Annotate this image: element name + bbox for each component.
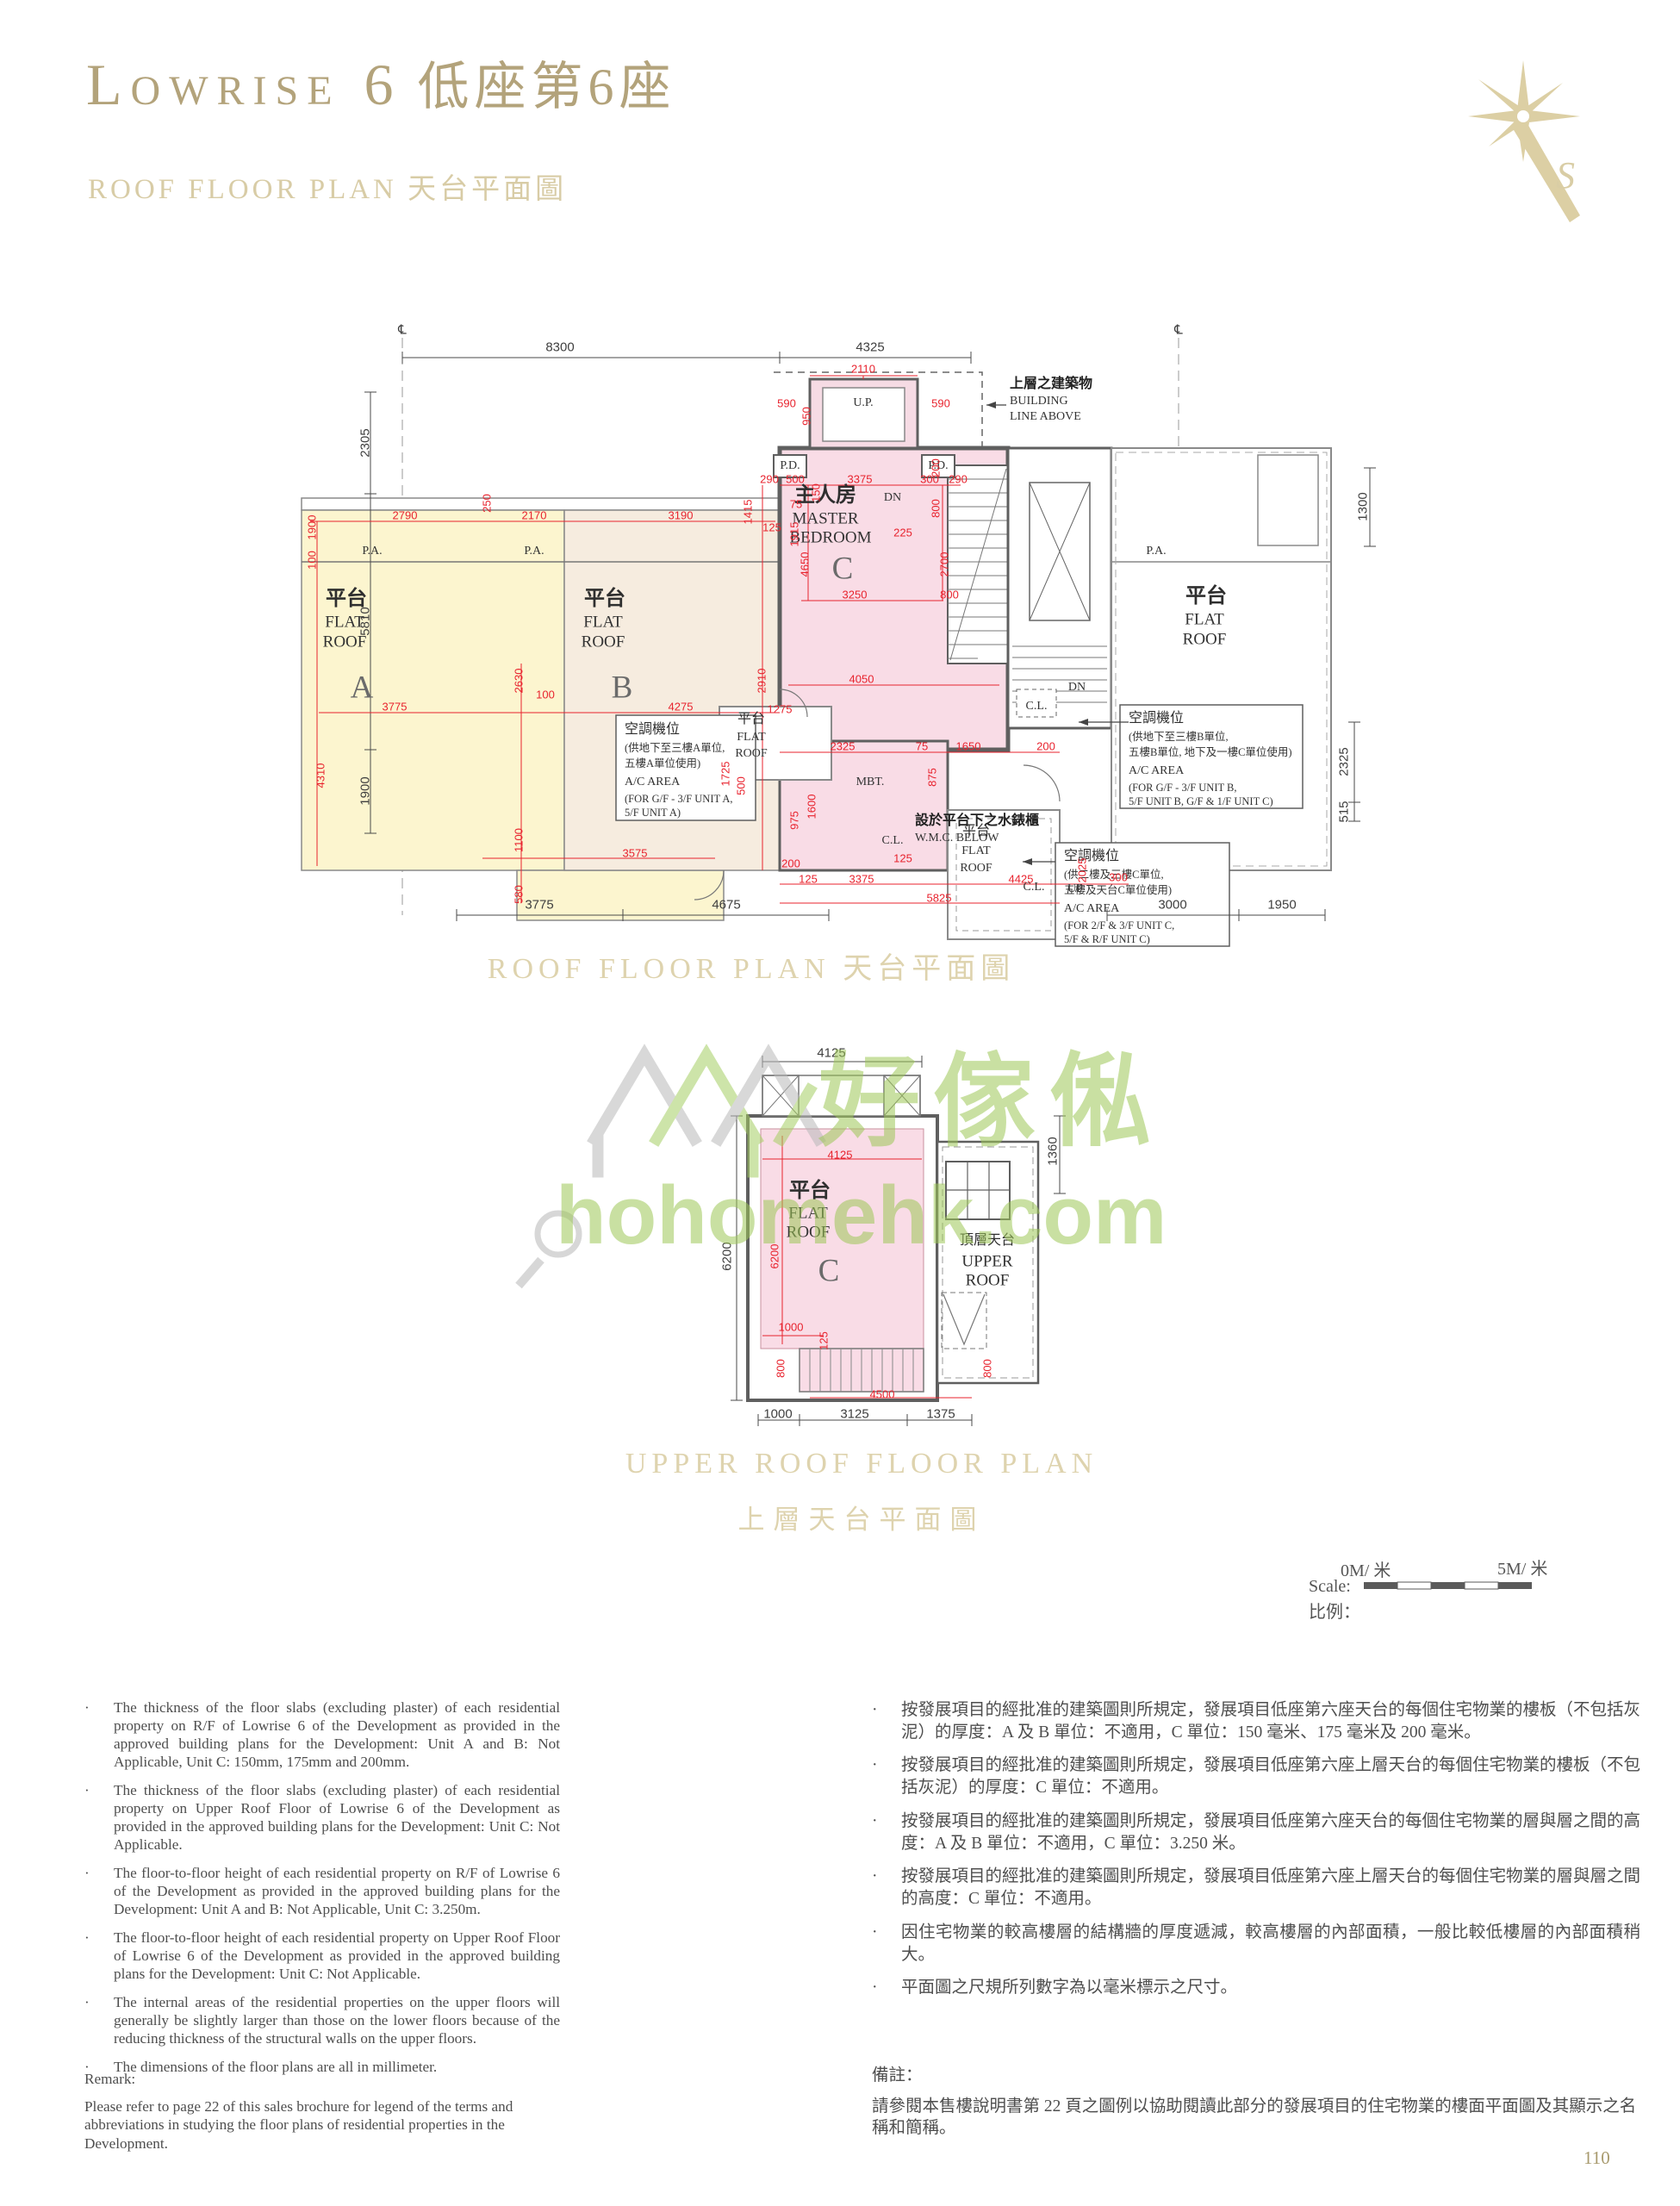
note-text: 按發展項目的經批准的建築圖則所規定，發展項目低座第六座天台的每個住宅物業的樓板（…	[901, 1699, 1640, 1743]
note-text: 因住宅物業的較高樓層的結構牆的厚度遞減，較高樓層的內部面積，一般比較低樓層的內部…	[901, 1922, 1640, 1966]
note-text: The floor-to-floor height of each reside…	[114, 1929, 560, 1984]
bullet-dot: ·	[84, 1782, 114, 1854]
plan-label: 800	[982, 1359, 993, 1378]
bullet-dot: ·	[84, 1929, 114, 1984]
notes-english: ·The thickness of the floor slabs (exclu…	[84, 1699, 560, 2087]
bullet-dot: ·	[872, 1977, 901, 1999]
bullet-dot: ·	[84, 1699, 114, 1772]
remark-english: Remark: Please refer to page 22 of this …	[84, 2070, 560, 2153]
note-item: ·因住宅物業的較高樓層的結構牆的厚度遞減，較高樓層的內部面積，一般比較低樓層的內…	[872, 1922, 1640, 1966]
note-item: ·按發展項目的經批准的建築圖則所規定，發展項目低座第六座上層天台的每個住宅物業的…	[872, 1754, 1640, 1798]
remark-text-en: Please refer to page 22 of this sales br…	[84, 2097, 560, 2153]
scale-label-en: Scale:	[1309, 1577, 1351, 1597]
scale-label-zh: 比例：	[1309, 1598, 1360, 1623]
note-item: ·The floor-to-floor height of each resid…	[84, 1865, 560, 1919]
plan-label: 125	[818, 1331, 830, 1350]
plan-label: ROOF	[966, 1273, 1010, 1289]
note-text: 平面圖之尺規所列數字為以毫米標示之尺寸。	[901, 1977, 1237, 1999]
bullet-dot: ·	[872, 1699, 901, 1743]
plan-label: 4500	[870, 1389, 895, 1400]
upper-plan-caption-zh: 上層天台平面圖	[738, 1498, 986, 1536]
note-item: ·The thickness of the floor slabs (exclu…	[84, 1782, 560, 1854]
note-item: ·The internal areas of the residential p…	[84, 1994, 560, 2048]
roof-plan-caption: ROOF FLOOR PLAN 天台平面圖	[488, 944, 1015, 987]
note-item: ·平面圖之尺規所列數字為以毫米標示之尺寸。	[872, 1977, 1640, 1999]
note-item: ·按發展項目的經批准的建築圖則所規定，發展項目低座第六座天台的每個住宅物業的層與…	[872, 1810, 1640, 1854]
note-text: The internal areas of the residential pr…	[114, 1994, 560, 2048]
note-item: ·The thickness of the floor slabs (exclu…	[84, 1699, 560, 1772]
bullet-dot: ·	[872, 1866, 901, 1910]
brochure-page: { "header": { "title_en": "Lowrise 6", "…	[0, 0, 1680, 2206]
note-text: The thickness of the floor slabs (exclud…	[114, 1699, 560, 1772]
note-text: 按發展項目的經批准的建築圖則所規定，發展項目低座第六座天台的每個住宅物業的層與層…	[901, 1810, 1640, 1854]
remark-label-en: Remark:	[84, 2070, 560, 2089]
remark-text-zh: 請參閱本售樓說明書第 22 頁之圖例以協助閱讀此部分的發展項目的住宅物業的樓面平…	[872, 2096, 1640, 2140]
plan-label: 1000	[763, 1408, 792, 1421]
bullet-dot: ·	[872, 1810, 901, 1854]
note-item: ·按發展項目的經批准的建築圖則所規定，發展項目低座第六座上層天台的每個住宅物業的…	[872, 1866, 1640, 1910]
note-text: The floor-to-floor height of each reside…	[114, 1865, 560, 1919]
note-text: 按發展項目的經批准的建築圖則所規定，發展項目低座第六座上層天台的每個住宅物業的樓…	[901, 1754, 1640, 1798]
note-item: ·The floor-to-floor height of each resid…	[84, 1929, 560, 1984]
page-number: 110	[1584, 2147, 1610, 2169]
plan-label: 3125	[840, 1408, 868, 1421]
plan-label: 1375	[926, 1408, 955, 1421]
note-text: The thickness of the floor slabs (exclud…	[114, 1782, 560, 1854]
bullet-dot: ·	[84, 1865, 114, 1919]
remark-label-zh: 備註：	[872, 2065, 1640, 2087]
scale-bar-graphic	[1364, 1580, 1536, 1591]
plan-label: 800	[775, 1359, 787, 1378]
upper-plan-caption-en: UPPER ROOF FLOOR PLAN	[625, 1448, 1098, 1480]
bullet-dot: ·	[872, 1754, 901, 1798]
note-item: ·按發展項目的經批准的建築圖則所規定，發展項目低座第六座天台的每個住宅物業的樓板…	[872, 1699, 1640, 1743]
plan-label: 1000	[779, 1322, 804, 1333]
scale-five-label: 5M/ 米	[1497, 1555, 1547, 1580]
remark-chinese: 備註： 請參閱本售樓說明書第 22 頁之圖例以協助閱讀此部分的發展項目的住宅物業…	[872, 2065, 1640, 2140]
note-text: 按發展項目的經批准的建築圖則所規定，發展項目低座第六座上層天台的每個住宅物業的層…	[901, 1866, 1640, 1910]
watermark-brand: 好傢俬	[818, 1019, 1165, 1166]
bullet-dot: ·	[84, 1994, 114, 2048]
notes-chinese: ·按發展項目的經批准的建築圖則所規定，發展項目低座第六座天台的每個住宅物業的樓板…	[872, 1699, 1640, 2010]
upper-plan-labels: 412513606200100031251375平台FLATROOFC頂層天台U…	[0, 0, 1680, 1551]
watermark-domain: hohomehk.com	[556, 1168, 1167, 1263]
bullet-dot: ·	[872, 1922, 901, 1966]
